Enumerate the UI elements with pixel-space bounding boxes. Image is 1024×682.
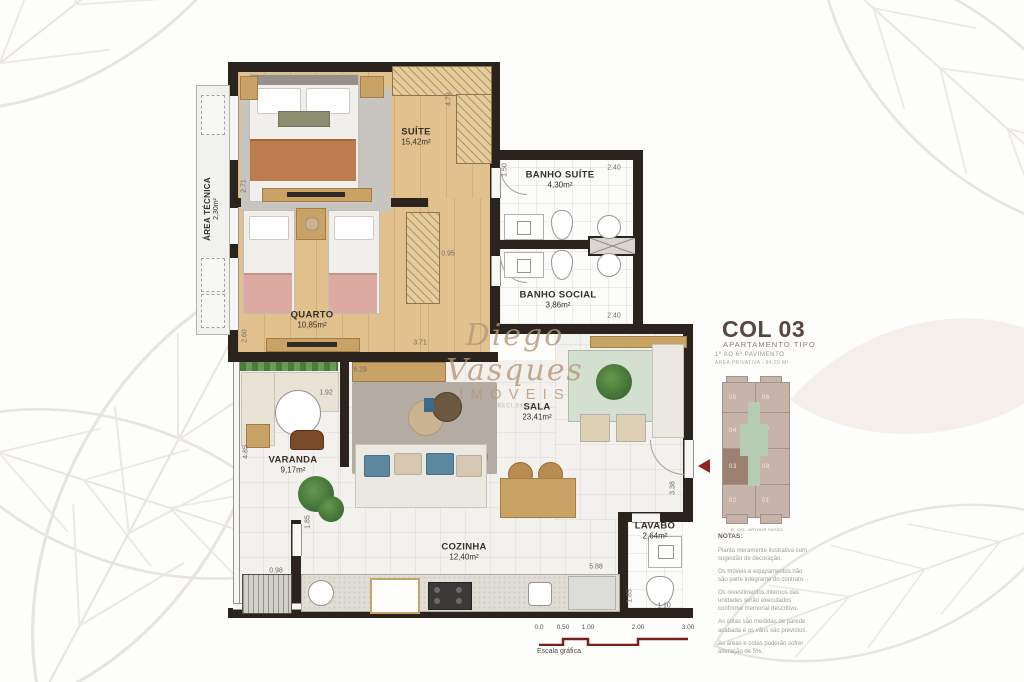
kitchen-sink-icon [528,582,552,606]
dimension: 5.88 [589,564,603,571]
dimension: 2.40 [607,165,621,172]
dining-table [500,478,576,518]
unit-subtitle: APARTAMENTO TIPO [723,340,816,349]
dimension: 6.29 [353,367,367,374]
brand-watermark: Diego Vasques IMÓVEIS CRECI 94.421 [420,318,610,409]
entry-door-gap [684,440,694,478]
pillow [249,216,289,240]
cushion [394,453,422,475]
varanda-chair [290,430,324,450]
varanda-stool [246,424,270,448]
dimension: 2.60 [242,329,249,343]
note-item: Planta meramente ilustrativa com sugestã… [718,547,810,563]
twin-blanket [329,273,377,313]
leaf-tint [790,318,1024,433]
dresser-detail [287,342,337,347]
shower-drain-icon [517,221,531,235]
kitchen-sink-icon [308,580,334,606]
unit-private-area: ÁREA PRIVATIVA - 84,20 M² [715,360,789,366]
lamp-icon [305,217,319,231]
quarto-window [229,258,239,330]
dimension: 1.92 [319,390,333,397]
scale-caption: Escala gráfica [537,648,581,655]
suite-window [229,96,239,160]
suite-closet-side [456,94,492,164]
cushion [426,453,454,475]
dimension: 1.85 [305,515,312,529]
wall-right-lower [683,334,693,520]
twin-blanket [244,273,292,313]
keyplan-unit: 06 [755,382,790,414]
nightstand [296,208,326,240]
dimension: 4.85 [243,445,250,459]
dimension: 0.95 [441,251,455,258]
dimension: 1.10 [657,603,671,610]
room-label-lavabo: LAVABO 2,64m² [635,521,676,542]
keyplan-unit: 02 [722,484,757,518]
cushion [364,455,390,477]
dimension: 1.85 [627,589,634,603]
wall-banho-divider [500,240,592,249]
washing-machine-icon [242,574,292,614]
suite-window-2 [229,208,239,244]
dimension: 2.71 [241,179,248,193]
basin-icon [658,545,674,559]
varanda-cozinha-door [292,524,302,556]
dimension: 4.79 [446,92,453,106]
unit-floors: 1º AO 6º PAVIMENTO [715,352,785,358]
varanda-rail [233,362,240,608]
nightstand [240,76,258,100]
headboard [250,75,358,85]
suite-closet-top [392,66,492,96]
floor-plan-page: ÁREA TÉCNICA 2,30m² SUÍTE 15,42m² QUARTO… [0,0,1024,682]
accent-pillow [278,111,330,127]
twin-bed [328,210,380,314]
keyplan-balcony [760,514,782,524]
shower-drain-icon [517,259,531,273]
nightstand [360,76,384,98]
brand-name: Diego Vasques [420,318,610,388]
note-item: Os revestimentos internos das unidades s… [718,589,810,613]
stove-icon [428,582,472,610]
ac-condenser-icon [201,258,225,292]
plant-icon [318,496,344,522]
note-item: As cotas são medidas de parede acabada e… [718,618,810,634]
suite-bed [249,74,359,202]
vanity-sink-icon [597,215,621,239]
brand-creci: CRECI 94.421 [420,403,610,409]
twin-bed [243,210,295,314]
room-label-suite: SUÍTE 15,42m² [401,127,430,148]
room-label-area-tecnica: ÁREA TÉCNICA 2,30m² [203,177,221,241]
room-label-banho-social: BANHO SOCIAL 3,86m² [520,290,597,311]
kitchen-island [370,578,420,614]
note-item: As áreas e cotas poderão sofrer alteraçã… [718,640,810,656]
wall-varanda-sala [340,362,349,467]
tv-icon [287,192,345,197]
vanity-sink-icon [597,253,621,277]
room-label-varanda: VARANDA 9,17m² [269,455,318,476]
dimension: 1.50 [502,163,509,177]
terrace-chair [580,414,610,442]
keyplan-elevator-core [740,424,768,456]
quarto-closet [406,212,440,304]
note-item: Os móveis e equipamentos não são parte i… [718,568,810,584]
brand-type: IMÓVEIS [420,386,610,403]
scale-tick: 3.00 [682,624,695,631]
tv-console [262,188,372,202]
dimension: 0.98 [269,568,283,575]
fridge-icon [568,576,616,610]
scale-tick: 0.0 [534,624,543,631]
scale-bar-line [535,632,695,646]
scale-tick: 2.00 [632,624,645,631]
dimension: 3.38 [670,481,677,495]
notes-section: NOTAS: Planta meramente ilustrativa com … [718,533,810,661]
sala-sofa [355,444,487,508]
key-plan: 05 06 04 07 03 08 02 01 [714,374,804,524]
cushion [456,455,482,477]
scale-tick: 0.50 [557,624,570,631]
room-label-cozinha: COZINHA 12,40m² [441,542,486,563]
terrace-chair [616,414,646,442]
dresser [266,338,360,352]
room-label-quarto: QUARTO 10,85m² [291,310,334,331]
keyplan-unit: 01 [755,484,790,518]
suite-blanket [250,139,356,181]
entry-arrow-icon [698,459,710,473]
terrace-lounge [652,344,684,438]
keyplan-caption: R. CEL. ARTHUR SAYÃO [731,527,783,532]
room-label-banho-suite: BANHO SUÍTE 4,30m² [526,170,595,191]
scale-tick: 1.00 [582,624,595,631]
pillow [334,216,374,240]
ac-condenser-icon [201,95,225,135]
ac-condenser-icon [201,294,225,328]
shower-box [504,214,544,240]
notes-title: NOTAS: [718,533,810,542]
planter-icon [240,362,338,371]
keyplan-balcony [726,514,748,524]
shower-box [504,252,544,278]
wall-banho-top [490,150,643,160]
unit-column-title: COL 03 [722,318,805,341]
